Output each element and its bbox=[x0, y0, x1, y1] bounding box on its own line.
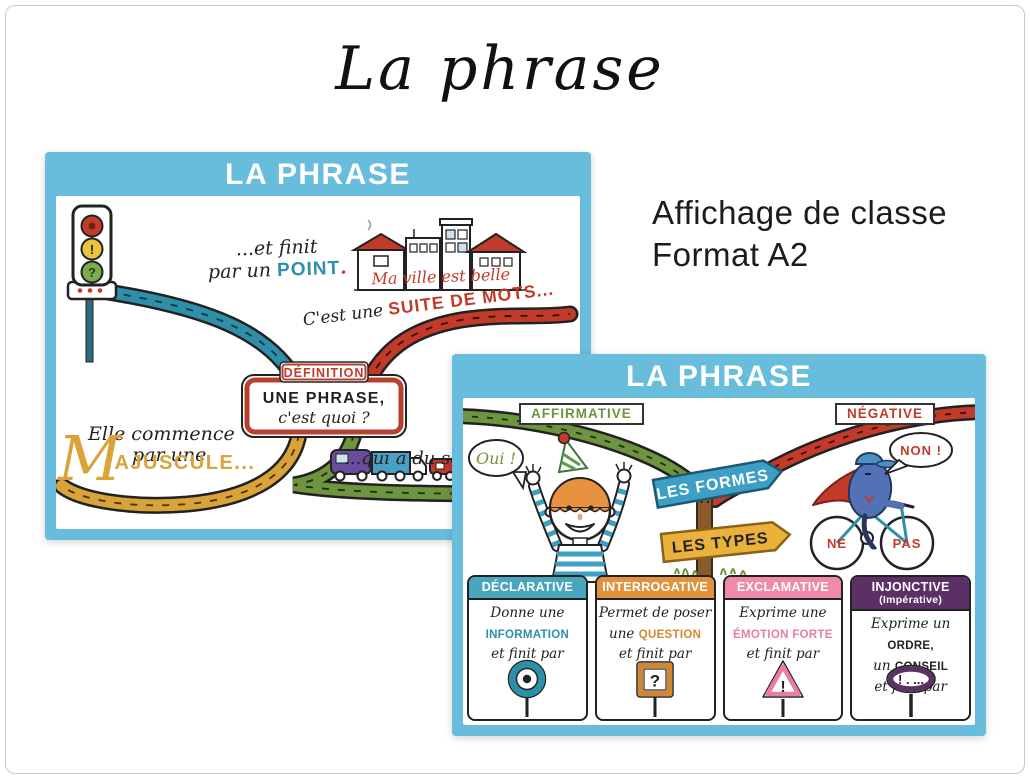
svg-text:!: ! bbox=[780, 679, 785, 696]
page-title: La phrase bbox=[270, 34, 730, 104]
majuscule-initial: M bbox=[58, 434, 121, 484]
les-types-sign: LES TYPES bbox=[661, 521, 791, 562]
caption-line1: Affichage de classe bbox=[652, 192, 947, 234]
point-word: POINT bbox=[277, 258, 341, 281]
caption-line2: Format A2 bbox=[652, 234, 947, 276]
boy-illustration: Oui ! bbox=[469, 433, 632, 583]
definition-line2: c'est quoi ? bbox=[278, 408, 370, 427]
card-title: INJONCTIVE bbox=[872, 580, 950, 594]
negative-label: NÉGATIVE bbox=[835, 403, 935, 425]
card-declarative: DÉCLARATIVE Donne une INFORMATION et fin… bbox=[467, 575, 588, 721]
svg-text:Oui !: Oui ! bbox=[476, 449, 516, 468]
card-interrogative: INTERROGATIVE Permet de poser une QUESTI… bbox=[595, 575, 716, 721]
finit-text: ...et finit par un POINT. bbox=[201, 235, 352, 284]
card-subtitle: (Impérative) bbox=[852, 595, 969, 607]
svg-text:NON !: NON ! bbox=[900, 443, 942, 458]
majuscule-rest: AJUSCULE... bbox=[114, 452, 255, 475]
oui-speech-bubble: Oui ! bbox=[469, 440, 526, 488]
point-period: . bbox=[340, 256, 347, 278]
majuscule-text: M AJUSCULE... bbox=[58, 434, 255, 484]
non-speech-bubble: NON ! bbox=[885, 433, 952, 474]
card-injonctive: INJONCTIVE (Impérative) Exprime un ORDRE… bbox=[850, 575, 971, 721]
wheel-pas-label: PAS bbox=[893, 536, 922, 551]
traffic-light-icon: ! ? bbox=[68, 206, 116, 362]
houses-illustration: Ma ville est belle bbox=[354, 219, 526, 290]
warning-glyph: ! bbox=[90, 242, 94, 257]
question-sign-icon: ? bbox=[597, 657, 714, 719]
card-title: EXCLAMATIVE bbox=[737, 580, 829, 594]
svg-text:! . ...: ! . ... bbox=[898, 672, 924, 687]
sentence-type-cards: DÉCLARATIVE Donne une INFORMATION et fin… bbox=[467, 575, 971, 721]
poster1-title: LA PHRASE bbox=[45, 152, 591, 196]
poster-formes-types: LA PHRASE LES FORMES bbox=[452, 354, 986, 736]
card-exclamative: EXCLAMATIVE Exprime une ÉMOTION FORTE et… bbox=[723, 575, 844, 721]
exclamation-sign-icon: ! bbox=[725, 657, 842, 719]
caption: Affichage de classe Format A2 bbox=[652, 192, 947, 276]
teal-road bbox=[108, 292, 299, 386]
wheel-ne-label: NE bbox=[827, 536, 847, 551]
card-title: INTERROGATIVE bbox=[602, 580, 708, 594]
poster2-body: LES FORMES LES TYPES bbox=[463, 398, 975, 725]
cyclist-illustration: NE PAS NON ! bbox=[811, 433, 952, 569]
poster2-title: LA PHRASE bbox=[452, 354, 986, 398]
definition-label: DÉFINITION bbox=[284, 365, 365, 380]
period-sign-icon bbox=[469, 657, 586, 719]
definition-line1: UNE PHRASE, bbox=[263, 390, 386, 407]
question-glyph: ? bbox=[88, 265, 96, 280]
affirmative-label: AFFIRMATIVE bbox=[519, 403, 644, 425]
svg-text:?: ? bbox=[650, 672, 660, 691]
card-title: DÉCLARATIVE bbox=[482, 580, 573, 594]
imperative-sign-icon: ! . ... bbox=[852, 657, 969, 719]
